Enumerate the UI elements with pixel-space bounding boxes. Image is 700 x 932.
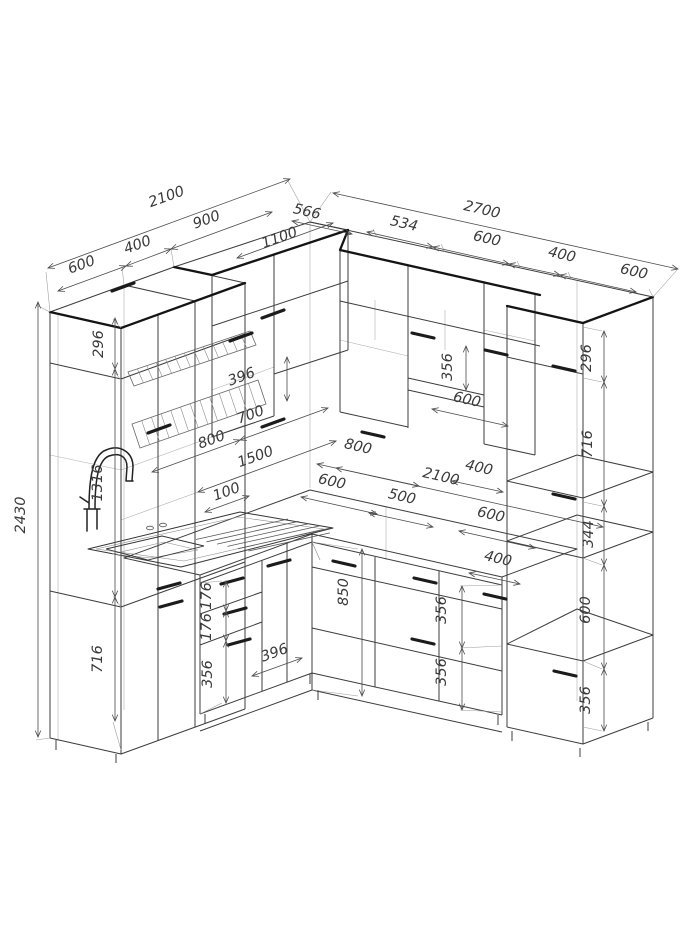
dim-total-height-2430: 2430 [13,497,29,534]
dim-right-top-296: 296 [579,344,595,372]
dim-base-396: 396 [259,641,290,666]
dim-counter-600-left: 600 [317,471,348,493]
dim-right-niche-344: 344 [581,520,597,548]
dim-base-400: 400 [483,548,514,570]
dim-left-seg-600: 600 [66,253,97,278]
dim-left-seg-400: 400 [122,233,153,258]
dim-upper-800-right: 800 [343,436,374,458]
dim-left-seg-900: 900 [191,208,222,233]
dim-counter-600-right: 600 [476,504,507,526]
extension-lines [36,181,677,750]
dim-drawer-356-mid-b: 356 [434,658,450,686]
dim-right-run-total: 2700 [462,198,502,222]
dim-drawer-176-b: 176 [199,613,215,641]
dim-counter-500: 500 [387,486,418,508]
dim-base-height-850: 850 [336,578,352,606]
tap-hole [147,526,154,530]
dim-right-seg-400: 400 [547,244,578,266]
dim-right-seg-534: 534 [389,213,420,235]
dim-right-drawer-356: 356 [578,686,594,714]
dim-drawer-356-left: 356 [200,660,216,688]
drawing-svg: 2100 900 566 400 1100 600 2700 534 600 4… [0,0,700,932]
dim-upper-800-left: 800 [196,428,227,453]
dim-right-seg-600-b: 600 [619,261,650,283]
dim-splash-100: 100 [211,480,242,505]
dim-left-top-296: 296 [91,330,107,358]
dim-drawer-356-mid-a: 356 [434,596,450,624]
dim-hood-niche-600: 600 [452,389,483,411]
dim-right-upper-716: 716 [580,430,596,458]
tap-hole [160,523,167,527]
cabinet-wireframe [50,222,653,763]
dim-counter-2100: 2100 [421,465,461,489]
dim-left-mid-1316: 1316 [90,465,106,502]
kitchen-dimension-drawing: 2100 900 566 400 1100 600 2700 534 600 4… [0,0,700,932]
dim-corner-depth-566: 566 [292,201,323,223]
dim-upper-400: 400 [464,457,495,479]
dim-left-run-total: 2100 [147,183,187,211]
dim-drawer-176-a: 176 [199,582,215,610]
dim-right-shelf-600: 600 [578,596,594,624]
dim-hood-niche-356: 356 [440,353,456,381]
dim-counter-1500: 1500 [236,443,276,471]
dim-right-seg-600-a: 600 [472,228,503,250]
dim-left-bottom-716: 716 [90,645,106,673]
